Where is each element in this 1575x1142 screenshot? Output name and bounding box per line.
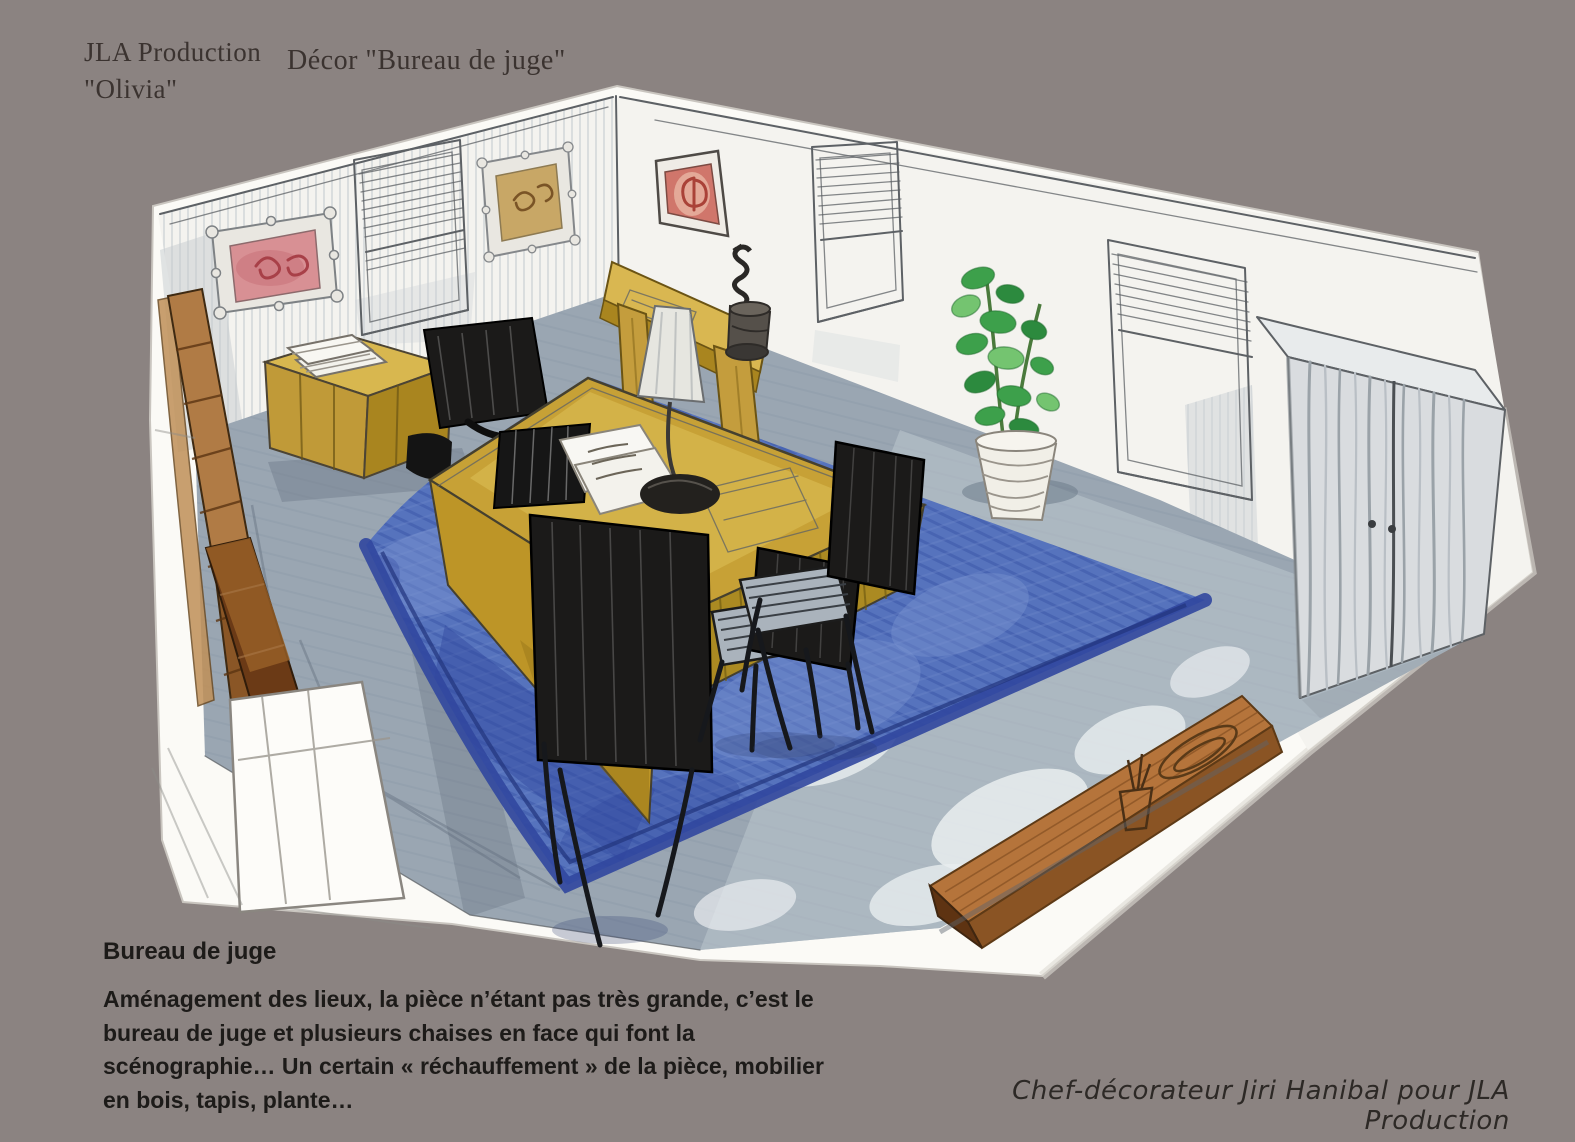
caption-line: en bois, tapis, plante… <box>103 1084 863 1118</box>
door-handle-left <box>1368 520 1376 528</box>
caption-line: scénographie… Un certain « réchauffement… <box>103 1050 863 1084</box>
caption-line: bureau de juge et plusieurs chaises en f… <box>103 1017 863 1051</box>
credit-line: Chef-décorateur Jiri Hanibal pour JLA Pr… <box>900 1076 1510 1136</box>
door-handle-right <box>1388 525 1396 533</box>
scanned-presentation-page: JLA Production "Olivia" Décor "Bureau de… <box>0 0 1575 1142</box>
caption-block: Bureau de juge Aménagement des lieux, la… <box>103 938 863 1117</box>
caption-line: Aménagement des lieux, la pièce n’étant … <box>103 983 863 1017</box>
caption-title: Bureau de juge <box>103 938 863 966</box>
red-picture <box>656 151 728 236</box>
